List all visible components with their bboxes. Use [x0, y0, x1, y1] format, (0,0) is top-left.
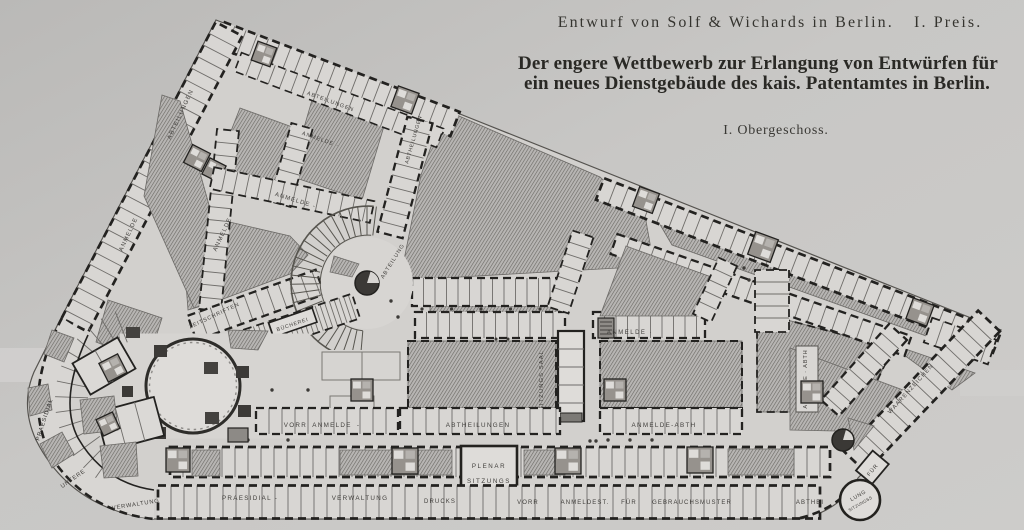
svg-text:VORR ANMELDE -: VORR ANMELDE - [284, 422, 361, 429]
svg-text:SITZUNGS SAAL: SITZUNGS SAAL [539, 350, 545, 410]
svg-text:VORR: VORR [517, 500, 539, 506]
svg-text:VERWALTUNG: VERWALTUNG [332, 495, 389, 502]
svg-text:ANMELDE-ABTH: ANMELDE-ABTH [632, 422, 697, 429]
svg-text:ANMELDEST.: ANMELDEST. [561, 500, 610, 506]
svg-text:I. Obergeschoss.: I. Obergeschoss. [723, 123, 828, 138]
svg-text:DRUCKS: DRUCKS [424, 499, 456, 505]
svg-text:FÜR: FÜR [621, 499, 637, 506]
svg-text:SITZUNGS: SITZUNGS [467, 478, 511, 485]
svg-text:Der engere Wettbewerb zur Erla: Der engere Wettbewerb zur Erlangung von … [518, 53, 998, 74]
svg-text:Entwurf von Solf & Wichards in: Entwurf von Solf & Wichards in Berlin. I… [558, 14, 983, 31]
svg-text:PRAESIDIAL -: PRAESIDIAL - [222, 495, 278, 502]
svg-text:ANMELDE ·: ANMELDE · [607, 330, 653, 336]
svg-text:ABTHEILUNGEN: ABTHEILUNGEN [446, 422, 511, 429]
svg-text:PLENAR: PLENAR [472, 463, 506, 470]
svg-text:GEBRAUCHSMUSTER: GEBRAUCHSMUSTER [652, 500, 732, 506]
svg-text:ABTHEI: ABTHEI [796, 500, 824, 506]
svg-text:ein neues Dienstgebäude des ka: ein neues Dienstgebäude des kais. Patent… [524, 73, 990, 94]
